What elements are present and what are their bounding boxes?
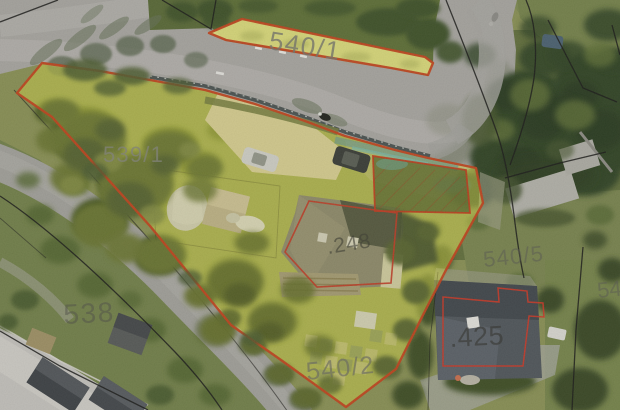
- svg-text:538: 538: [63, 296, 116, 330]
- svg-text:.425: .425: [449, 320, 505, 353]
- svg-text:539/1: 539/1: [103, 142, 164, 167]
- svg-text:54: 54: [596, 276, 620, 303]
